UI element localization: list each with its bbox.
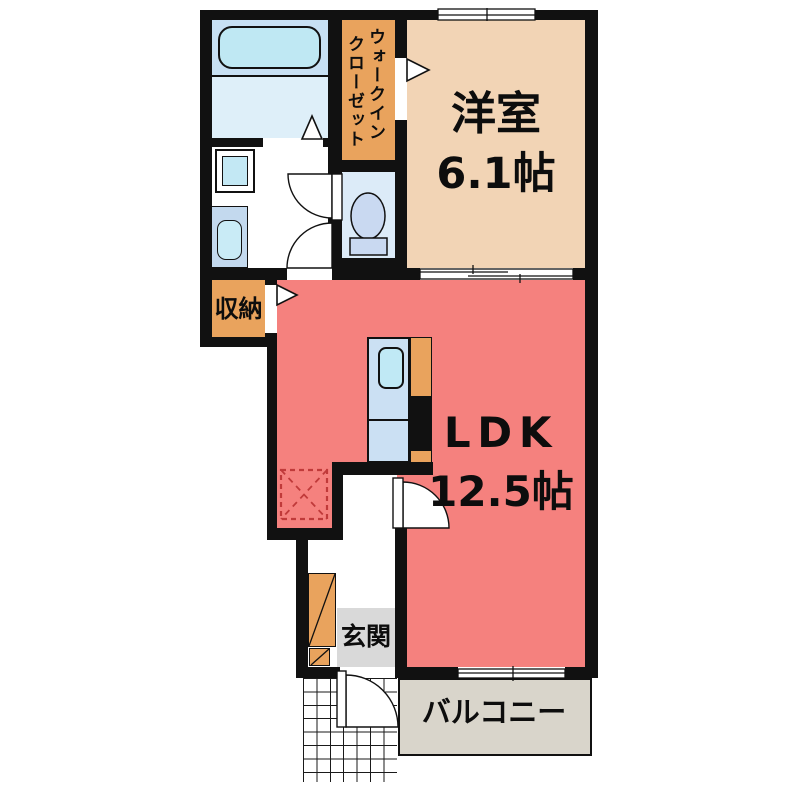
- refrigerator-space-dashed: [281, 470, 327, 519]
- floor-plan-canvas: 洋室 6.1帖 LDK 12.5帖 収納 玄関 バルコニー ウォークイン クロー…: [0, 0, 800, 791]
- storage-door-arrow: [277, 285, 297, 305]
- entrance-door-arc: [337, 671, 398, 727]
- toilet-door-arc: [288, 174, 342, 220]
- walk-in-closet-label-right: ウォークイン: [366, 28, 383, 142]
- western-room-size: 6.1帖: [407, 153, 585, 196]
- toilet-fixture: [350, 193, 387, 255]
- ldk-size: 12.5帖: [407, 471, 595, 513]
- balcony-label: バルコニー: [398, 698, 590, 727]
- shoe-cabinet-diagonal: [309, 574, 335, 646]
- plan-symbol-overlay: [0, 0, 800, 791]
- walk-in-closet-label-left: クローゼット: [345, 35, 362, 149]
- entrance-label: 玄関: [337, 624, 395, 649]
- window-balcony: [458, 666, 565, 681]
- bath-folding-door-arrow: [302, 116, 322, 139]
- washroom-door-arc: [287, 223, 332, 268]
- storage-label: 収納: [212, 297, 265, 321]
- shoe-cabinet-lower-diagonal: [311, 649, 329, 665]
- closet-door-arrow: [407, 59, 429, 81]
- sliding-door-partition: [420, 265, 573, 283]
- window-top: [438, 8, 535, 21]
- ldk-label: LDK: [417, 412, 585, 454]
- western-room-label: 洋室: [407, 91, 585, 136]
